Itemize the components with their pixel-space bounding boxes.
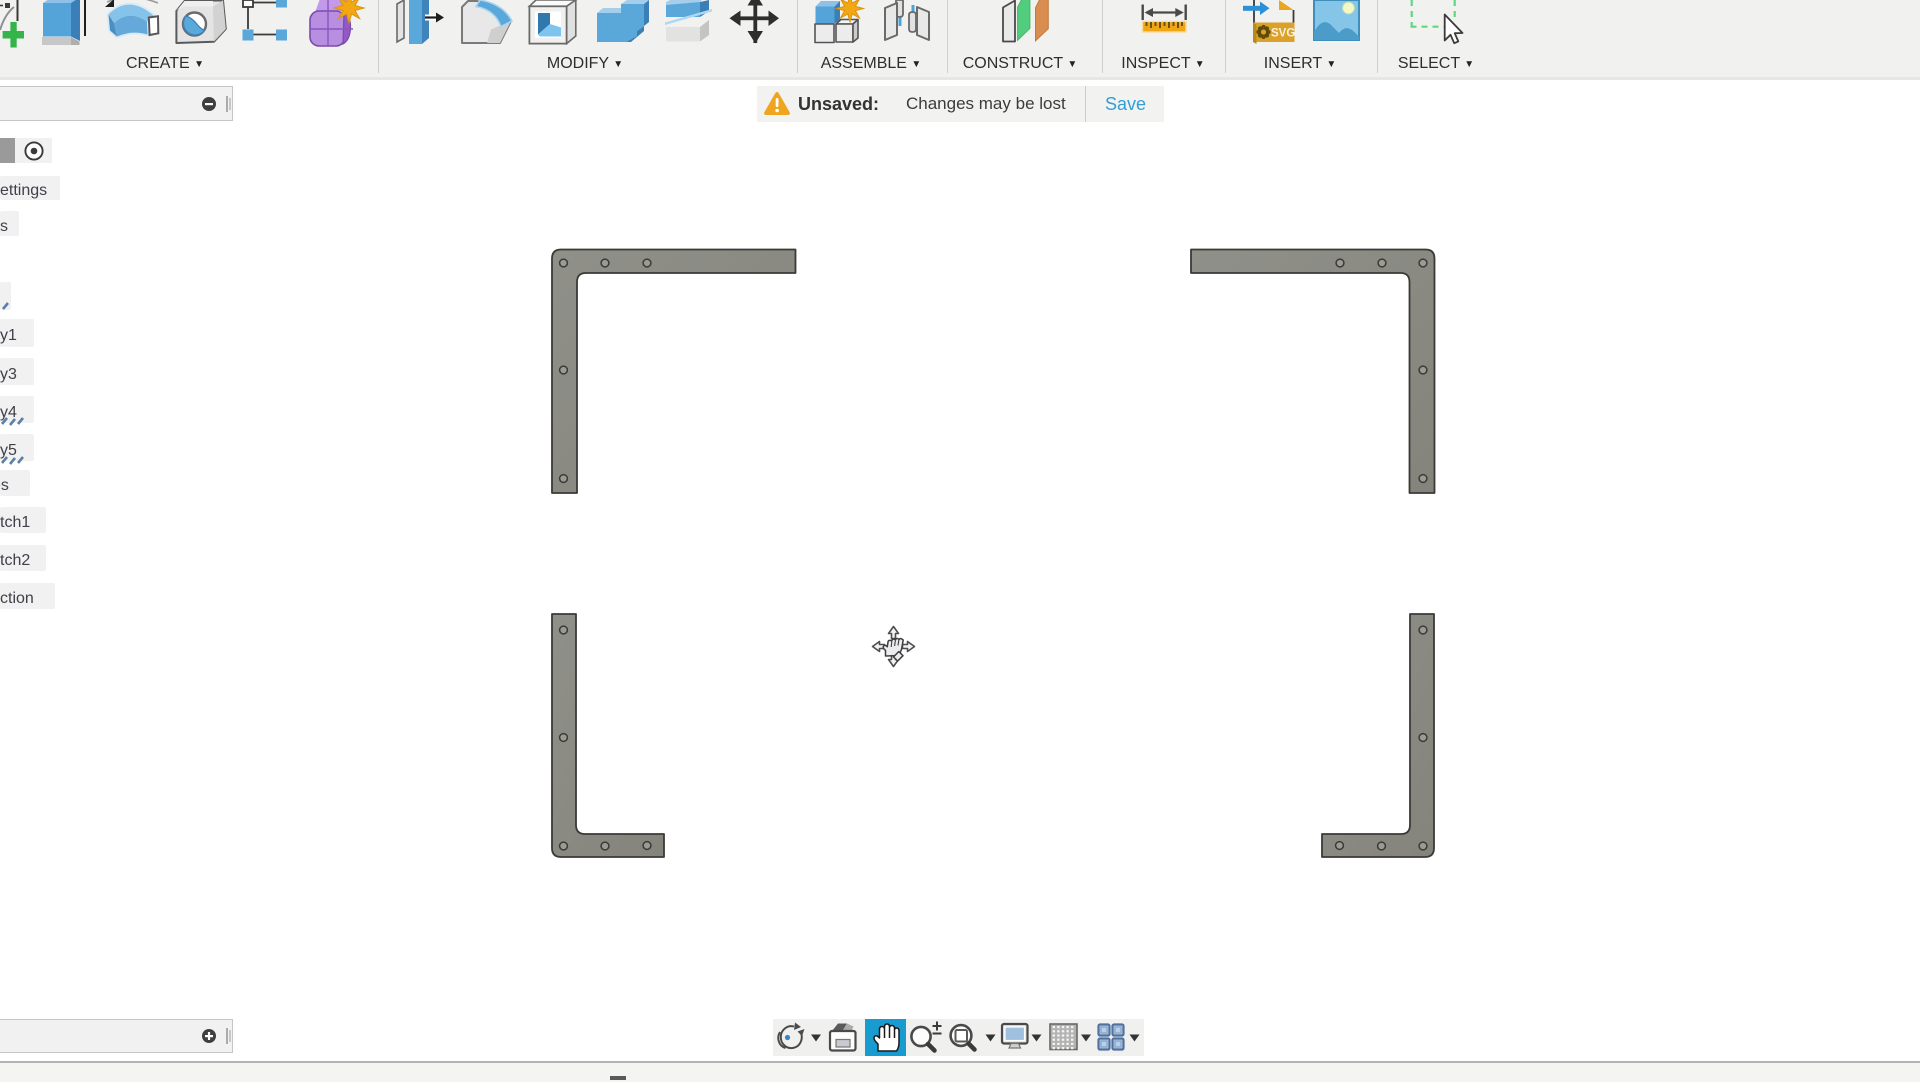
svg-text:SVG: SVG [1271,28,1295,40]
